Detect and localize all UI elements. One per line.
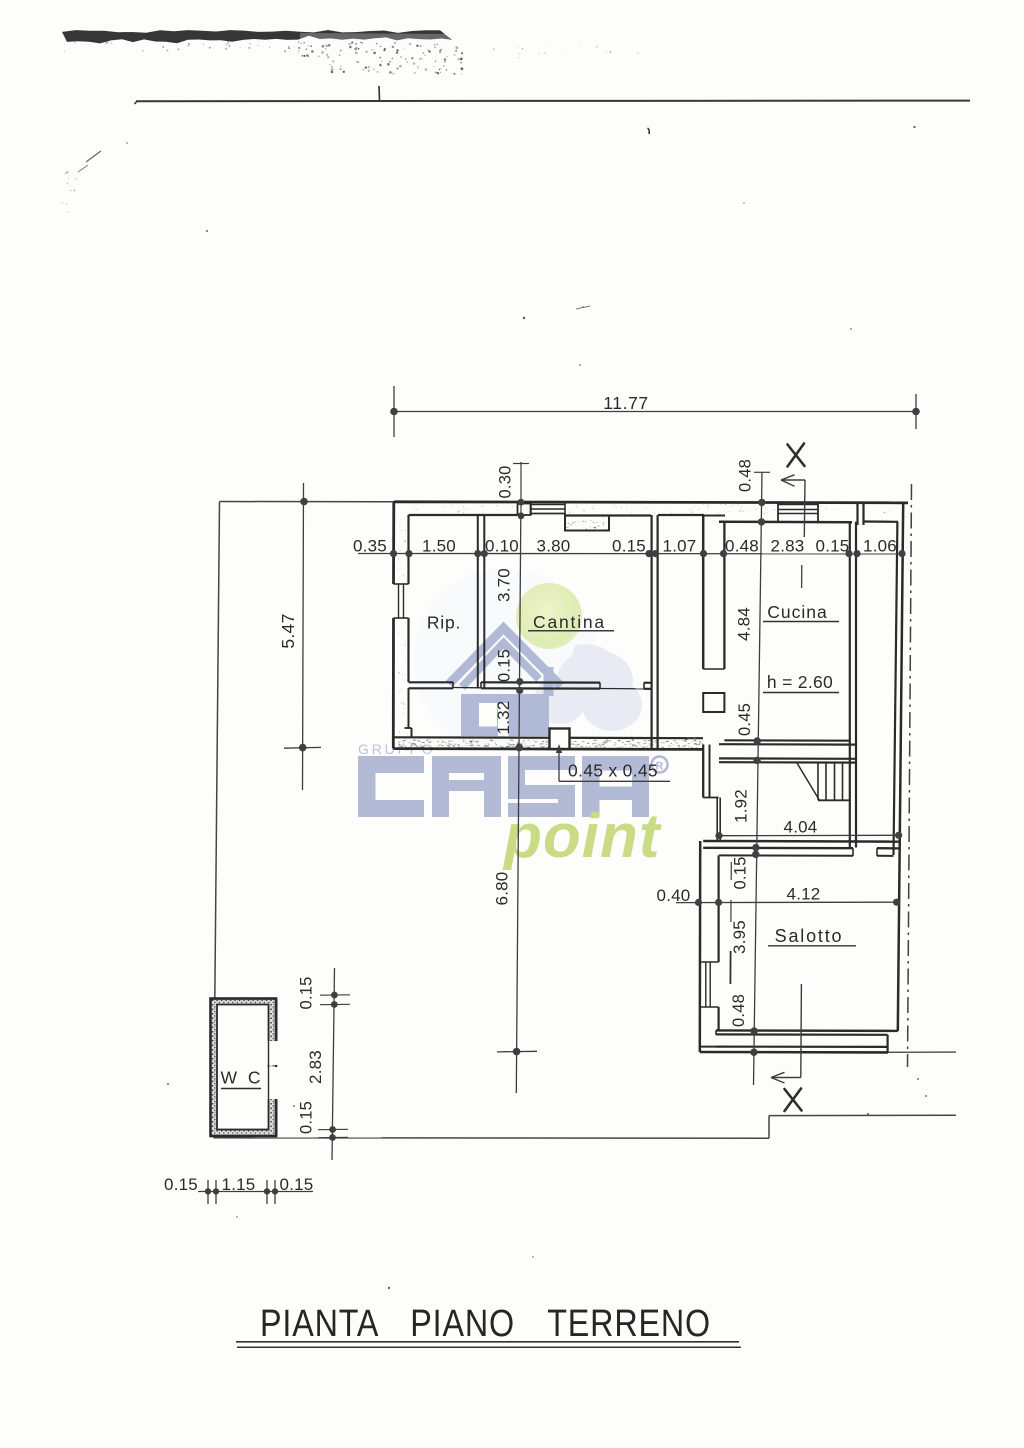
- svg-text:Salotto: Salotto: [775, 926, 844, 946]
- svg-text:3.95: 3.95: [730, 920, 749, 954]
- svg-text:3.80: 3.80: [537, 537, 571, 556]
- svg-text:0.48: 0.48: [725, 537, 759, 556]
- svg-text:0.15: 0.15: [164, 1175, 198, 1194]
- svg-text:2.83: 2.83: [771, 537, 805, 556]
- svg-text:0.45: 0.45: [736, 703, 754, 736]
- svg-text:0.15: 0.15: [496, 649, 514, 682]
- svg-text:1.06: 1.06: [863, 537, 897, 556]
- svg-text:1.92: 1.92: [732, 789, 751, 823]
- svg-text:0.48: 0.48: [737, 459, 755, 492]
- svg-text:1.15: 1.15: [222, 1175, 256, 1194]
- svg-text:0.15: 0.15: [612, 537, 646, 556]
- svg-text:0.48: 0.48: [730, 994, 748, 1027]
- svg-text:4.12: 4.12: [787, 885, 821, 904]
- svg-text:3.70: 3.70: [495, 568, 514, 602]
- svg-text:0.35: 0.35: [353, 537, 387, 556]
- svg-text:0.15: 0.15: [732, 857, 750, 890]
- svg-text:0.15: 0.15: [816, 537, 850, 556]
- svg-text:11.77: 11.77: [603, 393, 649, 413]
- svg-text:4.04: 4.04: [784, 818, 818, 837]
- svg-text:1.50: 1.50: [422, 537, 456, 556]
- svg-text:1.07: 1.07: [663, 537, 697, 556]
- svg-text:0.30: 0.30: [497, 466, 515, 499]
- svg-text:6.80: 6.80: [493, 872, 512, 906]
- svg-text:point: point: [502, 802, 662, 871]
- svg-text:Cucina: Cucina: [767, 602, 827, 622]
- svg-text:Rip.: Rip.: [427, 613, 461, 633]
- svg-text:PIANTA PIANO TERRENO: PIANTA PIANO TERRENO: [260, 1303, 711, 1345]
- svg-text:0.15: 0.15: [280, 1175, 314, 1194]
- svg-text:2.83: 2.83: [306, 1050, 325, 1084]
- svg-text:Cantina: Cantina: [533, 612, 606, 632]
- svg-text:0.45 x 0.45: 0.45 x 0.45: [568, 761, 658, 781]
- svg-text:h = 2.60: h = 2.60: [767, 672, 833, 692]
- svg-text:0.10: 0.10: [485, 537, 519, 556]
- svg-text:5.47: 5.47: [278, 613, 298, 648]
- svg-text:0.15: 0.15: [298, 1101, 316, 1134]
- svg-text:0.15: 0.15: [298, 977, 316, 1010]
- svg-text:W C: W C: [220, 1068, 263, 1088]
- svg-text:1.32: 1.32: [494, 701, 513, 735]
- svg-text:4.84: 4.84: [735, 607, 754, 641]
